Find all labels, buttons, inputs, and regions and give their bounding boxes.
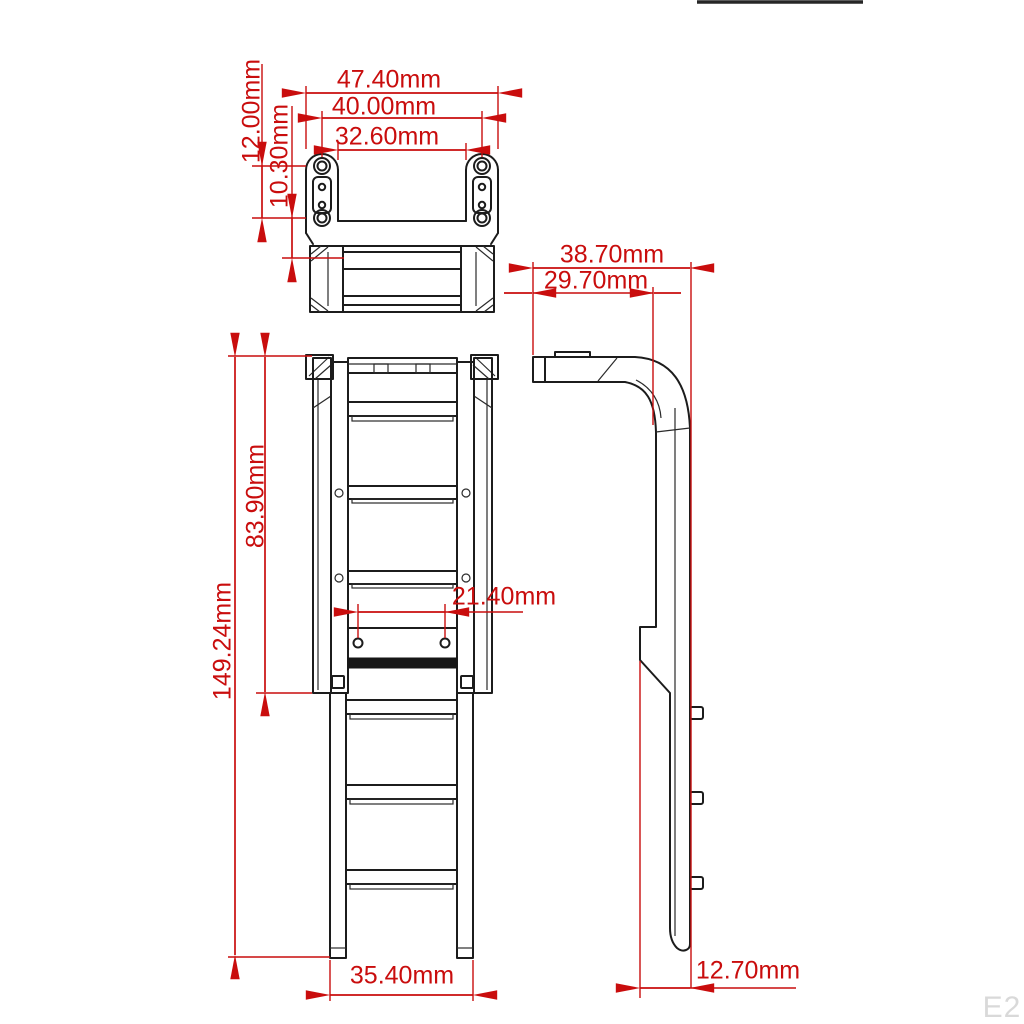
dim-label-40-00: 40.00mm [332, 95, 436, 120]
dim-label-12-70: 12.70mm [696, 959, 800, 984]
dim-label-29-70: 29.70mm [544, 269, 648, 294]
dim-label-35-40: 35.40mm [350, 964, 454, 989]
dim-label-149-24: 149.24mm [211, 582, 236, 700]
dim-label-32-60: 32.60mm [335, 125, 439, 150]
dim-label-12-00: 12.00mm [240, 59, 265, 163]
dim-label-83-90: 83.90mm [244, 444, 269, 548]
dim-label-38-70: 38.70mm [560, 243, 664, 268]
dim-label-10-30: 10.30mm [268, 104, 293, 208]
technical-drawing-page: 47.40mm 40.00mm 32.60mm 12.00mm 10.30mm … [0, 0, 1024, 1024]
watermark-text: E2 [983, 993, 1022, 1023]
dimension-labels-layer: 47.40mm 40.00mm 32.60mm 12.00mm 10.30mm … [0, 0, 1024, 1024]
dim-label-47-40: 47.40mm [337, 68, 441, 93]
dim-label-21-40: 21.40mm [452, 585, 556, 610]
